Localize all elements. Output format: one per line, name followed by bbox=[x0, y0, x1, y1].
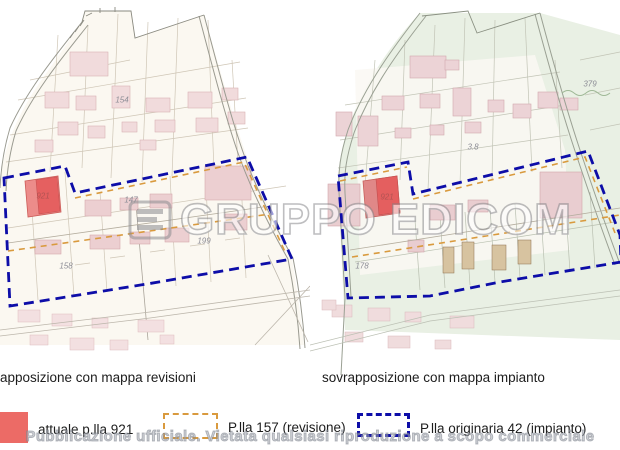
parcel-label: 921 bbox=[380, 193, 393, 202]
cadastral-overlay-document: 154 147 199 158 921 bbox=[0, 0, 620, 450]
legend-swatch-orange-dashed bbox=[163, 413, 218, 439]
legend-label-attuale: attuale p.lla 921 bbox=[38, 422, 133, 437]
map-panel-impianto: 921 379 3.8 178 bbox=[310, 0, 620, 375]
legend-label-revisione: P.lla 157 (revisione) bbox=[228, 420, 346, 435]
parcel-label: 147 bbox=[124, 196, 137, 205]
parcel-label: 178 bbox=[355, 262, 368, 271]
parcel-label: 199 bbox=[197, 237, 210, 246]
parcel-label: 921 bbox=[36, 192, 49, 201]
legend-swatch-blue-dashed bbox=[357, 413, 410, 437]
legend-swatch-red-fill bbox=[0, 412, 28, 443]
map-panel-revisioni: 154 147 199 158 921 bbox=[0, 0, 310, 375]
map-drawing-left bbox=[0, 0, 310, 375]
caption-left-map: apposizione con mappa revisioni bbox=[0, 370, 196, 385]
map-drawing-right bbox=[310, 0, 620, 375]
parcel-label: 158 bbox=[59, 262, 72, 271]
caption-right-map: sovrapposizione con mappa impianto bbox=[322, 370, 545, 385]
legend-label-impianto: P.lla originaria 42 (impianto) bbox=[420, 421, 586, 436]
parcel-label: 3.8 bbox=[467, 143, 478, 152]
parcel-label: 154 bbox=[115, 96, 128, 105]
parcel-label: 379 bbox=[583, 80, 596, 89]
